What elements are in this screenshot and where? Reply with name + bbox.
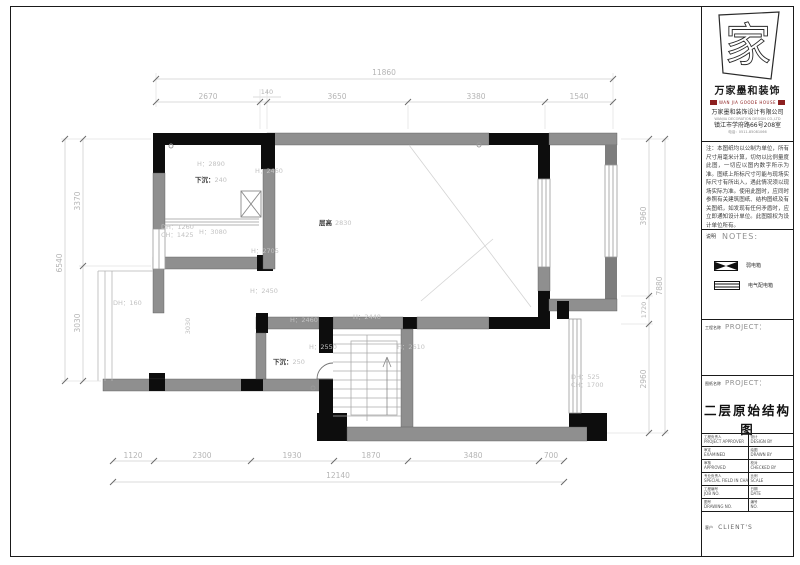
signature-table: 工程负责人PROJECT APPROVER 设计DESIGN BY 审定EXAM… bbox=[702, 433, 793, 511]
cell-design-by: 设计DESIGN BY bbox=[748, 433, 794, 446]
dim-bottom-6: 700 bbox=[544, 451, 559, 460]
title-block-spacer bbox=[702, 307, 793, 319]
cell-approved: 审核APPROVED bbox=[702, 459, 748, 472]
label-dh-left: DH：1260 bbox=[161, 223, 194, 231]
cell-drawn-by: 绘图DRAWN BY bbox=[748, 446, 794, 459]
client-label-cn: 客户 bbox=[705, 525, 713, 530]
label-height-2705: H：2705 bbox=[251, 247, 279, 255]
company-info: 万家墨和装饰设计有限公司 WANJIA DECORATION DESIGN CO… bbox=[702, 107, 793, 141]
drawing-sheet: 11860 2670 140 3650 3380 1540 12140 1120… bbox=[0, 0, 800, 565]
dim-bottom-1: 1120 bbox=[123, 451, 142, 460]
cell-scale: 比例SCALE bbox=[748, 472, 794, 485]
company-name: 万家墨和装饰设计有限公司 bbox=[702, 109, 793, 117]
dim-bottom-total: 12140 bbox=[326, 471, 350, 480]
dim-top-4: 3380 bbox=[466, 92, 485, 101]
dim-top-2: 140 bbox=[261, 88, 273, 96]
project-section-label-en: PROJECT： bbox=[725, 322, 766, 332]
title-block: 家 万家墨和装饰 WAN JIA GOODE HOUSE 万家墨和装饰设计有限公… bbox=[701, 7, 793, 556]
legend-item-weak-current: 弱电箱 bbox=[714, 261, 793, 271]
brand-name: 万家墨和装饰 bbox=[702, 85, 793, 98]
dim-bottom-4: 1870 bbox=[361, 451, 380, 460]
cell-examined: 审定EXAMINED bbox=[702, 446, 748, 459]
company-phone: 电话：0511-85081066 bbox=[702, 130, 793, 135]
label-height-2440: H：2440 bbox=[353, 313, 381, 321]
label-dh-160: DH：160 bbox=[113, 299, 142, 307]
label-height-2460b: H：2460 bbox=[290, 316, 318, 324]
brand-name-en: WAN JIA GOODE HOUSE bbox=[719, 100, 776, 105]
cell-project-approver: 工程负责人PROJECT APPROVER bbox=[702, 433, 748, 446]
label-height-flue: H：2460 bbox=[255, 167, 283, 175]
legend-label-weak-current: 弱电箱 bbox=[746, 262, 761, 269]
room-labels: H：2890 下沉：240 H：2460 DH：1260 CH：1425 H：3… bbox=[113, 160, 603, 389]
flue-shaft bbox=[241, 191, 261, 217]
label-height-topleft: H：2890 bbox=[197, 160, 225, 168]
cell-job-no: 工程编号JOB NO. bbox=[702, 485, 748, 498]
label-ceiling-height: 层高2830 bbox=[318, 218, 352, 227]
logo-calligraphy-glyph: 家 bbox=[725, 18, 771, 72]
dim-left-2: 3030 bbox=[73, 313, 82, 332]
project-name-section: 工程名称 PROJECT： bbox=[702, 319, 793, 375]
dim-right-total: 7880 bbox=[655, 276, 664, 295]
dim-top-1: 2670 bbox=[198, 92, 217, 101]
stair-arrow bbox=[383, 357, 391, 415]
notes-header-en: NOTES: bbox=[722, 232, 758, 241]
balcony-railing bbox=[98, 271, 153, 381]
notes-header: 说明 NOTES: bbox=[702, 229, 793, 243]
sheet-frame: 11860 2670 140 3650 3380 1540 12140 1120… bbox=[10, 6, 794, 557]
cell-checked-by: 校对CHECKED BY bbox=[748, 459, 794, 472]
dim-right-3: 2960 bbox=[639, 369, 648, 388]
brand-accent-right bbox=[778, 100, 785, 105]
cell-no: 编号NO. bbox=[748, 498, 794, 511]
cell-drawing-no: 图号DRAWING NO. bbox=[702, 498, 748, 511]
legend: 弱电箱 电气配电箱 bbox=[702, 243, 793, 307]
label-height-3080: H：3080 bbox=[199, 228, 227, 236]
dim-bottom-5: 3480 bbox=[463, 451, 482, 460]
client-section: 客户 CLIENT'S bbox=[702, 511, 793, 556]
drawing-section-label-cn: 图纸名称 bbox=[705, 381, 721, 387]
brand-name-en-row: WAN JIA GOODE HOUSE bbox=[702, 98, 793, 107]
cell-special-field: 专业负责人SPECIAL FIELD IN CHARGE bbox=[702, 472, 748, 485]
label-height-2610: H：2610 bbox=[397, 343, 425, 351]
notes-header-cn: 说明 bbox=[706, 233, 716, 240]
label-dh-525: DH：525 bbox=[571, 373, 600, 381]
cell-date: 日期DATE bbox=[748, 485, 794, 498]
label-sunken-a: 下沉：240 bbox=[195, 175, 227, 184]
dim-top-total: 11860 bbox=[372, 68, 396, 77]
dim-bottom-2: 2300 bbox=[192, 451, 211, 460]
label-ch-left: CH：1425 bbox=[161, 231, 193, 239]
client-label-en: CLIENT'S bbox=[718, 524, 753, 531]
dim-left-1: 3370 bbox=[73, 191, 82, 210]
company-logo: 家 bbox=[702, 7, 793, 85]
general-notes: 注：本图纸均以公制为单位，所有尺寸用毫米计算，切勿以比例量度此图，一切应以图内数… bbox=[702, 141, 793, 229]
drawing-section-label-en: PROJECT： bbox=[725, 378, 766, 388]
label-height-2450: H：2450 bbox=[250, 287, 278, 295]
dim-left-total: 6540 bbox=[55, 253, 64, 272]
weak-current-box-icon bbox=[714, 261, 738, 271]
dim-right-1: 3960 bbox=[639, 206, 648, 225]
label-dim-3030: 3030 bbox=[184, 318, 192, 335]
brand-accent-left bbox=[710, 100, 717, 105]
company-address: 镇江市学府路66号208室 bbox=[702, 122, 793, 130]
label-height-2550: H：2550 bbox=[309, 343, 337, 351]
project-section-label-cn: 工程名称 bbox=[705, 325, 721, 331]
floor-plan: 11860 2670 140 3650 3380 1540 12140 1120… bbox=[11, 7, 714, 564]
label-ch-1700: CH：1700 bbox=[571, 381, 603, 389]
legend-label-distribution: 电气配电箱 bbox=[748, 282, 773, 289]
dim-top-5: 1540 bbox=[569, 92, 588, 101]
dim-bottom-3: 1930 bbox=[282, 451, 301, 460]
legend-item-distribution: 电气配电箱 bbox=[714, 281, 793, 290]
stairs bbox=[333, 335, 401, 421]
dim-right-2: 1720 bbox=[640, 302, 648, 319]
dim-top-3: 3650 bbox=[327, 92, 346, 101]
drawing-name-section: 图纸名称 PROJECT： 二层原始结构图 bbox=[702, 375, 793, 433]
distribution-box-icon bbox=[714, 281, 740, 290]
label-sunken-b: 下沉：250 bbox=[273, 357, 305, 366]
ceiling-diagonals bbox=[409, 145, 531, 307]
